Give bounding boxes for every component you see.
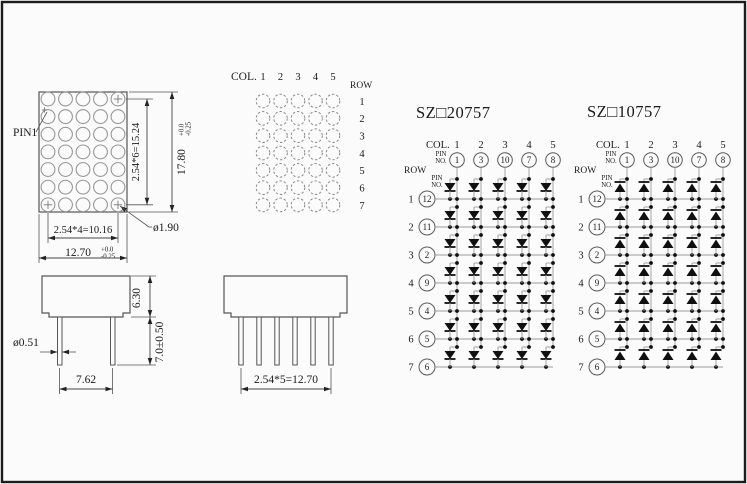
row-number: 4 bbox=[359, 149, 365, 160]
junction-dot bbox=[625, 233, 629, 237]
row-pin-number: 4 bbox=[595, 306, 600, 316]
col-number: 2 bbox=[648, 140, 653, 151]
pin-no-label: PIN bbox=[432, 175, 443, 182]
junction-dot bbox=[551, 289, 555, 293]
row-number: 7 bbox=[359, 201, 364, 212]
row-number: 2 bbox=[359, 114, 364, 125]
lead-pin bbox=[111, 317, 116, 365]
junction-dot bbox=[721, 317, 725, 321]
junction-dot bbox=[527, 309, 531, 313]
row-number: 1 bbox=[359, 97, 364, 108]
row-number: 1 bbox=[408, 195, 413, 206]
col-pin-number: 3 bbox=[649, 155, 654, 165]
page-border bbox=[2, 2, 745, 482]
junction-dot bbox=[551, 345, 555, 349]
lead-pin bbox=[329, 317, 333, 365]
junction-dot bbox=[503, 281, 507, 285]
col-number: 3 bbox=[672, 140, 677, 151]
col-header-label: COL. bbox=[231, 71, 257, 83]
junction-dot bbox=[503, 177, 507, 181]
junction-dot bbox=[479, 281, 483, 285]
junction-dot bbox=[673, 289, 677, 293]
junction-dot bbox=[673, 225, 677, 229]
row-pin-number: 5 bbox=[595, 334, 600, 344]
col-number: 1 bbox=[454, 140, 459, 151]
junction-dot bbox=[479, 177, 483, 181]
junction-dot bbox=[721, 177, 725, 181]
junction-dot bbox=[625, 337, 629, 341]
junction-dot bbox=[649, 197, 653, 201]
junction-dot bbox=[673, 233, 677, 237]
junction-dot bbox=[673, 205, 677, 209]
col-number: 1 bbox=[624, 140, 629, 151]
lead-pin bbox=[239, 317, 243, 365]
row-number: 5 bbox=[408, 307, 413, 318]
junction-dot bbox=[479, 197, 483, 201]
junction-dot bbox=[455, 253, 459, 257]
junction-dot bbox=[551, 177, 555, 181]
junction-dot bbox=[721, 345, 725, 349]
col-pin-number: 10 bbox=[671, 155, 681, 165]
col-number: 5 bbox=[550, 140, 555, 151]
junction-dot bbox=[697, 177, 701, 181]
junction-dot bbox=[649, 281, 653, 285]
junction-dot bbox=[625, 317, 629, 321]
junction-dot bbox=[625, 177, 629, 181]
junction-dot bbox=[503, 253, 507, 257]
junction-dot bbox=[697, 205, 701, 209]
row-number: 2 bbox=[408, 223, 413, 234]
junction-dot bbox=[721, 337, 725, 341]
junction-dot bbox=[551, 281, 555, 285]
junction-dot bbox=[697, 309, 701, 313]
junction-dot bbox=[503, 309, 507, 313]
junction-dot bbox=[527, 205, 531, 209]
row-number: 2 bbox=[578, 223, 583, 234]
junction-dot bbox=[721, 309, 725, 313]
pin-no-label: PIN bbox=[436, 151, 447, 158]
junction-dot bbox=[625, 309, 629, 313]
junction-dot bbox=[527, 345, 531, 349]
col-pin-number: 10 bbox=[501, 155, 511, 165]
junction-dot bbox=[721, 233, 725, 237]
junction-dot bbox=[625, 197, 629, 201]
circuit-left-title: SZ□20757 bbox=[416, 103, 490, 122]
junction-dot bbox=[721, 281, 725, 285]
junction-dot bbox=[503, 289, 507, 293]
junction-dot bbox=[649, 261, 653, 265]
junction-dot bbox=[625, 225, 629, 229]
row-number: 6 bbox=[578, 335, 583, 346]
junction-dot bbox=[527, 253, 531, 257]
dim-width-tol-minus: -0.25 bbox=[101, 254, 116, 261]
junction-dot bbox=[527, 281, 531, 285]
junction-dot bbox=[551, 197, 555, 201]
row-pin-number: 9 bbox=[595, 278, 600, 288]
pin-no-label: PIN bbox=[602, 175, 613, 182]
row-number: 5 bbox=[578, 307, 583, 318]
dim-width-label: 12.70 bbox=[65, 247, 91, 259]
dim-height-label: 17.80 bbox=[176, 149, 188, 175]
col-number: 1 bbox=[260, 72, 265, 83]
pin-no-label: NO. bbox=[605, 158, 617, 165]
junction-dot bbox=[455, 317, 459, 321]
junction-dot bbox=[455, 337, 459, 341]
pin-no-label: NO. bbox=[431, 182, 443, 189]
col-number: 3 bbox=[502, 140, 507, 151]
junction-dot bbox=[551, 337, 555, 341]
dim-height-tol-plus: +0.0 bbox=[179, 123, 186, 136]
junction-dot bbox=[697, 233, 701, 237]
junction-dot bbox=[649, 177, 653, 181]
row-pin-number: 6 bbox=[595, 362, 600, 372]
junction-dot bbox=[527, 261, 531, 265]
junction-dot bbox=[479, 233, 483, 237]
pin-no-label: PIN bbox=[606, 151, 617, 158]
row-pin-number: 11 bbox=[423, 222, 432, 232]
junction-dot bbox=[455, 197, 459, 201]
junction-dot bbox=[479, 345, 483, 349]
junction-dot bbox=[673, 345, 677, 349]
junction-dot bbox=[697, 197, 701, 201]
pin1-label: PIN1 bbox=[13, 127, 38, 139]
row-pin-number: 5 bbox=[425, 334, 430, 344]
junction-dot bbox=[697, 225, 701, 229]
row-pin-number: 4 bbox=[425, 306, 430, 316]
junction-dot bbox=[551, 205, 555, 209]
junction-dot bbox=[721, 225, 725, 229]
junction-dot bbox=[625, 261, 629, 265]
junction-dot bbox=[673, 309, 677, 313]
col-pin-number: 1 bbox=[455, 155, 460, 165]
junction-dot bbox=[673, 317, 677, 321]
junction-dot bbox=[551, 253, 555, 257]
junction-dot bbox=[455, 309, 459, 313]
junction-dot bbox=[673, 253, 677, 257]
junction-dot bbox=[479, 205, 483, 209]
junction-dot bbox=[479, 225, 483, 229]
datasheet-drawing-page: PIN1 2.54*6=15.24 17.80 +0.0 -0.25 2.54*… bbox=[0, 0, 747, 484]
junction-dot bbox=[527, 337, 531, 341]
junction-dot bbox=[527, 197, 531, 201]
junction-dot bbox=[527, 289, 531, 293]
junction-dot bbox=[649, 345, 653, 349]
lead-pin bbox=[58, 317, 63, 365]
junction-dot bbox=[479, 253, 483, 257]
col-number: 2 bbox=[478, 140, 483, 151]
junction-dot bbox=[527, 177, 531, 181]
row-number: 3 bbox=[578, 251, 583, 262]
lead-pin bbox=[275, 317, 279, 365]
col-pin-number: 3 bbox=[479, 155, 484, 165]
junction-dot bbox=[721, 197, 725, 201]
junction-dot bbox=[527, 233, 531, 237]
junction-dot bbox=[649, 225, 653, 229]
junction-dot bbox=[455, 261, 459, 265]
pin-no-label: NO. bbox=[435, 158, 447, 165]
junction-dot bbox=[551, 261, 555, 265]
junction-dot bbox=[527, 225, 531, 229]
col-pin-number: 8 bbox=[551, 155, 556, 165]
junction-dot bbox=[503, 233, 507, 237]
row-header-label: ROW bbox=[574, 166, 596, 176]
junction-dot bbox=[503, 225, 507, 229]
junction-dot bbox=[503, 317, 507, 321]
row-pin-number: 12 bbox=[593, 194, 602, 204]
col-number: 2 bbox=[278, 72, 283, 83]
junction-dot bbox=[479, 317, 483, 321]
dim-col-span-label: 2.54*4=10.16 bbox=[54, 225, 112, 236]
row-pin-number: 9 bbox=[425, 278, 430, 288]
junction-dot bbox=[455, 205, 459, 209]
dim-pin-length-label: 7.0±0.50 bbox=[154, 321, 166, 362]
junction-dot bbox=[673, 337, 677, 341]
col-number: 4 bbox=[313, 72, 319, 83]
junction-dot bbox=[625, 289, 629, 293]
dim-pin-pitch-label: 2.54*5=12.70 bbox=[254, 374, 318, 386]
row-number: 6 bbox=[359, 183, 364, 194]
junction-dot bbox=[551, 309, 555, 313]
dim-body-height-label: 6.30 bbox=[131, 288, 143, 308]
row-pin-number: 6 bbox=[425, 362, 430, 372]
junction-dot bbox=[455, 345, 459, 349]
junction-dot bbox=[503, 345, 507, 349]
col-pin-number: 7 bbox=[527, 155, 532, 165]
junction-dot bbox=[625, 205, 629, 209]
row-number: 3 bbox=[359, 131, 364, 142]
col-pin-number: 1 bbox=[625, 155, 630, 165]
junction-dot bbox=[479, 289, 483, 293]
dim-width-tol-plus: +0.0 bbox=[101, 247, 114, 254]
junction-dot bbox=[455, 177, 459, 181]
row-header-label: ROW bbox=[404, 166, 426, 176]
junction-dot bbox=[527, 317, 531, 321]
dim-row-span-label: 2.54*6=15.24 bbox=[131, 122, 142, 181]
junction-dot bbox=[479, 261, 483, 265]
junction-dot bbox=[721, 253, 725, 257]
junction-dot bbox=[721, 205, 725, 209]
junction-dot bbox=[625, 281, 629, 285]
junction-dot bbox=[625, 345, 629, 349]
row-number: 5 bbox=[359, 166, 364, 177]
col-pin-number: 8 bbox=[721, 155, 726, 165]
junction-dot bbox=[503, 205, 507, 209]
junction-dot bbox=[697, 281, 701, 285]
circuit-right-title: SZ□10757 bbox=[587, 102, 661, 121]
junction-dot bbox=[551, 233, 555, 237]
col-pin-number: 7 bbox=[697, 155, 702, 165]
junction-dot bbox=[479, 337, 483, 341]
junction-dot bbox=[697, 253, 701, 257]
row-pin-number: 2 bbox=[425, 250, 430, 260]
lead-pin bbox=[293, 317, 297, 365]
row-number: 7 bbox=[578, 363, 583, 374]
junction-dot bbox=[503, 337, 507, 341]
row-header-label: ROW bbox=[350, 81, 372, 91]
pin-no-label: NO. bbox=[601, 182, 613, 189]
row-number: 4 bbox=[578, 279, 584, 290]
dim-pin-diameter-label: ø0.51 bbox=[13, 337, 39, 349]
row-number: 3 bbox=[408, 251, 413, 262]
junction-dot bbox=[673, 281, 677, 285]
junction-dot bbox=[697, 317, 701, 321]
junction-dot bbox=[649, 205, 653, 209]
row-number: 7 bbox=[408, 363, 413, 374]
junction-dot bbox=[649, 289, 653, 293]
junction-dot bbox=[455, 281, 459, 285]
junction-dot bbox=[673, 177, 677, 181]
col-number: 3 bbox=[295, 72, 300, 83]
col-header-label: COL. bbox=[426, 140, 450, 151]
drawing-svg: PIN1 2.54*6=15.24 17.80 +0.0 -0.25 2.54*… bbox=[0, 0, 747, 484]
lead-pin bbox=[257, 317, 261, 365]
junction-dot bbox=[697, 345, 701, 349]
junction-dot bbox=[649, 309, 653, 313]
col-number: 4 bbox=[696, 140, 702, 151]
junction-dot bbox=[697, 261, 701, 265]
dim-dot-diameter-label: ø1.90 bbox=[153, 222, 179, 234]
junction-dot bbox=[649, 337, 653, 341]
junction-dot bbox=[721, 261, 725, 265]
col-number: 5 bbox=[330, 72, 335, 83]
row-number: 1 bbox=[578, 195, 583, 206]
junction-dot bbox=[673, 197, 677, 201]
col-number: 5 bbox=[720, 140, 725, 151]
junction-dot bbox=[649, 317, 653, 321]
col-number: 4 bbox=[526, 140, 532, 151]
junction-dot bbox=[673, 261, 677, 265]
junction-dot bbox=[455, 225, 459, 229]
junction-dot bbox=[551, 317, 555, 321]
junction-dot bbox=[455, 233, 459, 237]
dim-pin-spacing-label: 7.62 bbox=[76, 374, 96, 386]
junction-dot bbox=[697, 337, 701, 341]
row-number: 6 bbox=[408, 335, 413, 346]
junction-dot bbox=[625, 253, 629, 257]
junction-dot bbox=[649, 233, 653, 237]
lead-pin bbox=[311, 317, 315, 365]
junction-dot bbox=[503, 261, 507, 265]
junction-dot bbox=[721, 289, 725, 293]
junction-dot bbox=[551, 225, 555, 229]
row-number: 4 bbox=[408, 279, 414, 290]
dim-height-tol-minus: -0.25 bbox=[186, 121, 193, 136]
row-pin-number: 11 bbox=[593, 222, 602, 232]
row-pin-number: 12 bbox=[423, 194, 432, 204]
col-header-label: COL. bbox=[596, 140, 620, 151]
row-pin-number: 2 bbox=[595, 250, 600, 260]
junction-dot bbox=[455, 289, 459, 293]
junction-dot bbox=[503, 197, 507, 201]
junction-dot bbox=[479, 309, 483, 313]
junction-dot bbox=[649, 253, 653, 257]
junction-dot bbox=[697, 289, 701, 293]
